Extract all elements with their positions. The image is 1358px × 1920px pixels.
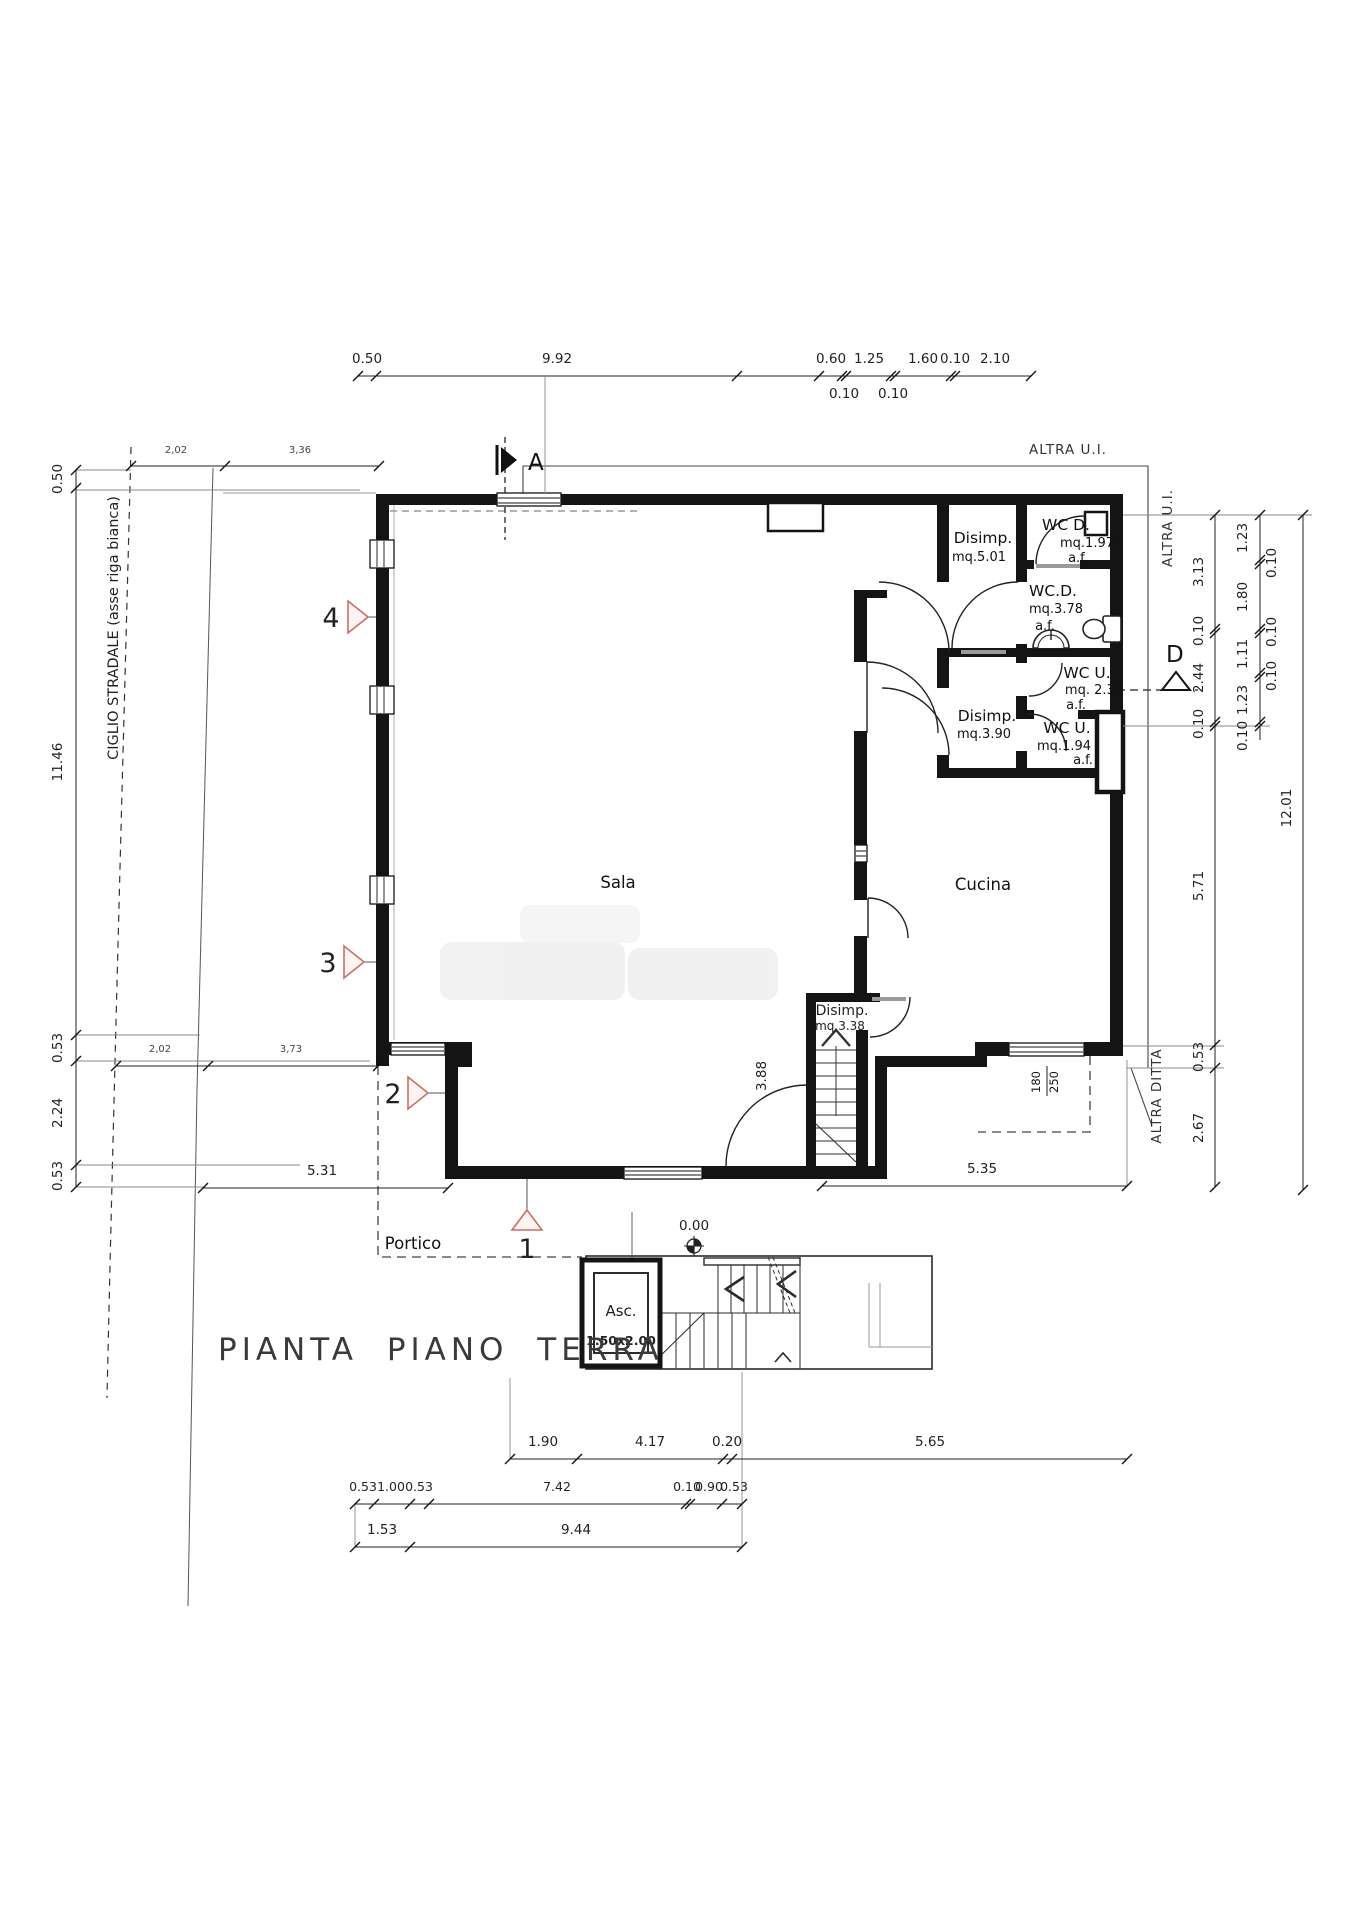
dim-ri-4: 5.71	[1191, 871, 1207, 901]
dim-bb-3: 5.65	[915, 1434, 945, 1450]
elevator-label: Asc.	[605, 1302, 636, 1320]
label-wcd197-area: mq.1.97	[1060, 536, 1114, 551]
dim-rm-0: 1.23	[1235, 523, 1251, 553]
label-wcd197-af: a.f.	[1068, 551, 1088, 566]
dim-bc-2: 0.53	[405, 1479, 433, 1494]
dim-lhu-1: 3,36	[289, 445, 311, 456]
terrace-dashed-outline	[978, 1056, 1090, 1132]
level-marker: 0.00	[679, 1218, 709, 1256]
label-wcu233-area: mq. 2.33	[1065, 683, 1123, 698]
dim-top-sub-0: 0.10	[829, 386, 859, 402]
landing-edge	[704, 1258, 800, 1265]
label-portico: Portico	[385, 1234, 441, 1253]
dim-left-2: 0.53	[50, 1033, 66, 1063]
door-cucina	[868, 898, 908, 938]
window-partition	[855, 845, 867, 862]
dim-rm-7: 0.10	[1235, 721, 1251, 751]
window-kitchen	[1009, 1043, 1084, 1056]
label-disimp390-name: Disimp.	[958, 707, 1017, 725]
dim-left-1: 11.46	[50, 743, 66, 782]
section-d-icon	[1162, 672, 1190, 690]
view-markers: 4 3 2 1	[319, 601, 542, 1265]
window-left-1	[370, 540, 394, 568]
section-d-label: D	[1166, 642, 1184, 668]
dim-interior-sala: 3.88	[754, 1061, 770, 1091]
dim-right-total: 12.01	[1279, 789, 1295, 828]
view-marker-2-label: 2	[384, 1079, 401, 1110]
section-a-label: A	[528, 450, 544, 476]
dim-left-0: 0.50	[50, 464, 66, 494]
floor-plan-page: Asc. 1.50x2.00 0.00 A D 4 3 2 1	[0, 0, 1358, 1920]
boundary-labels: CIGLIO STRADALE (asse riga bianca) ALTRA…	[106, 442, 1176, 1144]
window-tag-width: 180	[1029, 1071, 1043, 1093]
interior-stair	[816, 1030, 856, 1162]
building-walls	[376, 494, 1123, 1179]
view-marker-4-label: 4	[322, 603, 339, 634]
dim-bc-5: 0.90	[695, 1479, 723, 1494]
dim-ri-6: 2.67	[1191, 1113, 1207, 1143]
duct-shaft	[1097, 712, 1123, 792]
dim-bc-3: 7.42	[543, 1479, 571, 1494]
dim-top-4: 1.60	[908, 351, 938, 367]
dim-bc-6: 0.53	[720, 1479, 748, 1494]
dim-rm-3: 0.10	[1264, 617, 1280, 647]
window-bottom-left	[391, 1043, 445, 1055]
dim-ri-0: 3.13	[1191, 557, 1207, 587]
room-labels: Sala Cucina Portico Disimp. mq.5.01 WC D…	[385, 516, 1123, 1253]
label-disimp338-name: Disimp.	[816, 1003, 869, 1019]
view-marker-1: 1	[512, 1179, 542, 1265]
label-cucina: Cucina	[955, 875, 1011, 894]
view-marker-2: 2	[384, 1077, 445, 1110]
dim-rm-5: 0.10	[1264, 661, 1280, 691]
dim-bc-1: 1.00	[377, 1479, 405, 1494]
dim-ri-5: 0.53	[1191, 1042, 1207, 1072]
section-a-icon	[501, 447, 517, 473]
label-altra-ui-right: ALTRA U.I.	[1160, 489, 1176, 567]
dim-left-3: 2.24	[50, 1098, 66, 1128]
dim-ri-2: 2.44	[1191, 663, 1207, 693]
drawing-title: PIANTA PIANO TERRA	[218, 1332, 664, 1368]
dim-bb-0: 1.90	[528, 1434, 558, 1450]
plot-boundary-line	[188, 468, 213, 1606]
label-wcd197-name: WC D.	[1042, 516, 1090, 534]
door-disimp501	[879, 582, 949, 652]
label-wcd378-name: WC.D.	[1029, 582, 1077, 600]
dim-bb-1: 4.17	[635, 1434, 665, 1450]
window-left-2	[370, 686, 394, 714]
label-altra-ui-top: ALTRA U.I.	[1029, 442, 1107, 458]
dim-rm-2: 1.80	[1235, 582, 1251, 612]
stair-break-line	[816, 1124, 856, 1162]
window-size-tag: 180 250	[1029, 1066, 1061, 1096]
dim-rm-4: 1.11	[1235, 639, 1251, 669]
dim-ri-3: 0.10	[1191, 709, 1207, 739]
level-value: 0.00	[679, 1218, 709, 1234]
window-left-3	[370, 876, 394, 904]
window-top	[497, 493, 561, 506]
dim-lhu-0: 2,02	[165, 445, 187, 456]
label-wcd378-af: a.f.	[1035, 619, 1055, 634]
dim-ri-1: 0.10	[1191, 616, 1207, 646]
small-chevron	[775, 1353, 791, 1362]
dim-bc-0: 0.53	[349, 1479, 377, 1494]
view-marker-3-label: 3	[319, 948, 336, 979]
dim-bd-1: 9.44	[561, 1522, 591, 1538]
floor-plan-drawing: Asc. 1.50x2.00 0.00 A D 4 3 2 1	[0, 0, 1358, 1920]
dim-top-6: 2.10	[980, 351, 1010, 367]
window-sala-bottom	[624, 1167, 702, 1179]
label-wcu194-area: mq.1.94	[1037, 739, 1091, 754]
dim-rm-1: 0.10	[1264, 548, 1280, 578]
dim-top-3: 1.25	[854, 351, 884, 367]
view-marker-3: 3	[319, 946, 376, 979]
label-sala: Sala	[600, 873, 635, 892]
site-boundaries	[107, 447, 1152, 1606]
dim-top-0: 0.50	[352, 351, 382, 367]
label-disimp390-area: mq.3.90	[957, 727, 1011, 742]
label-disimp501-name: Disimp.	[954, 529, 1013, 547]
door-disimp390	[882, 688, 949, 755]
view-marker-1-label: 1	[518, 1234, 535, 1265]
label-wcu194-af: a.f.	[1073, 753, 1093, 768]
dim-lhl-0: 2,02	[149, 1044, 171, 1055]
label-wcu233-name: WC U.	[1063, 664, 1110, 682]
label-altra-ditta: ALTRA DITTA	[1149, 1048, 1165, 1143]
label-wcu194-name: WC U.	[1043, 719, 1090, 737]
door-wcu233	[1029, 663, 1062, 696]
dim-ba-0: 5.31	[307, 1163, 337, 1179]
dim-ba-1: 5.35	[967, 1161, 997, 1177]
landing-grey-steps	[869, 1283, 932, 1347]
door-entrance	[726, 1085, 807, 1166]
door-sala-hall	[867, 662, 938, 733]
dim-top-2: 0.60	[816, 351, 846, 367]
label-wcd378-area: mq.3.78	[1029, 602, 1083, 617]
dim-left-4: 0.53	[50, 1161, 66, 1191]
dim-top-1: 9.92	[542, 351, 572, 367]
window-tag-height: 250	[1047, 1071, 1061, 1093]
view-marker-4: 4	[322, 601, 376, 634]
watermark	[440, 905, 778, 1000]
wall-step-detail	[768, 503, 823, 531]
label-disimp338-area: mq.3.38	[815, 1019, 865, 1033]
door-wcd378	[952, 582, 1018, 648]
dim-top-5: 0.10	[940, 351, 970, 367]
label-ciglio-stradale: CIGLIO STRADALE (asse riga bianca)	[106, 496, 122, 760]
dim-bd-0: 1.53	[367, 1522, 397, 1538]
dim-top-sub-1: 0.10	[878, 386, 908, 402]
flight-arrow-1	[726, 1277, 744, 1301]
label-disimp501-area: mq.5.01	[952, 550, 1006, 565]
door-disimp338	[870, 997, 910, 1037]
toilet	[1083, 616, 1121, 642]
dim-lhl-1: 3,73	[280, 1044, 302, 1055]
dim-bb-2: 0.20	[712, 1434, 742, 1450]
dim-rm-6: 1.23	[1235, 685, 1251, 715]
label-wcu233-af: a.f.	[1066, 698, 1086, 713]
